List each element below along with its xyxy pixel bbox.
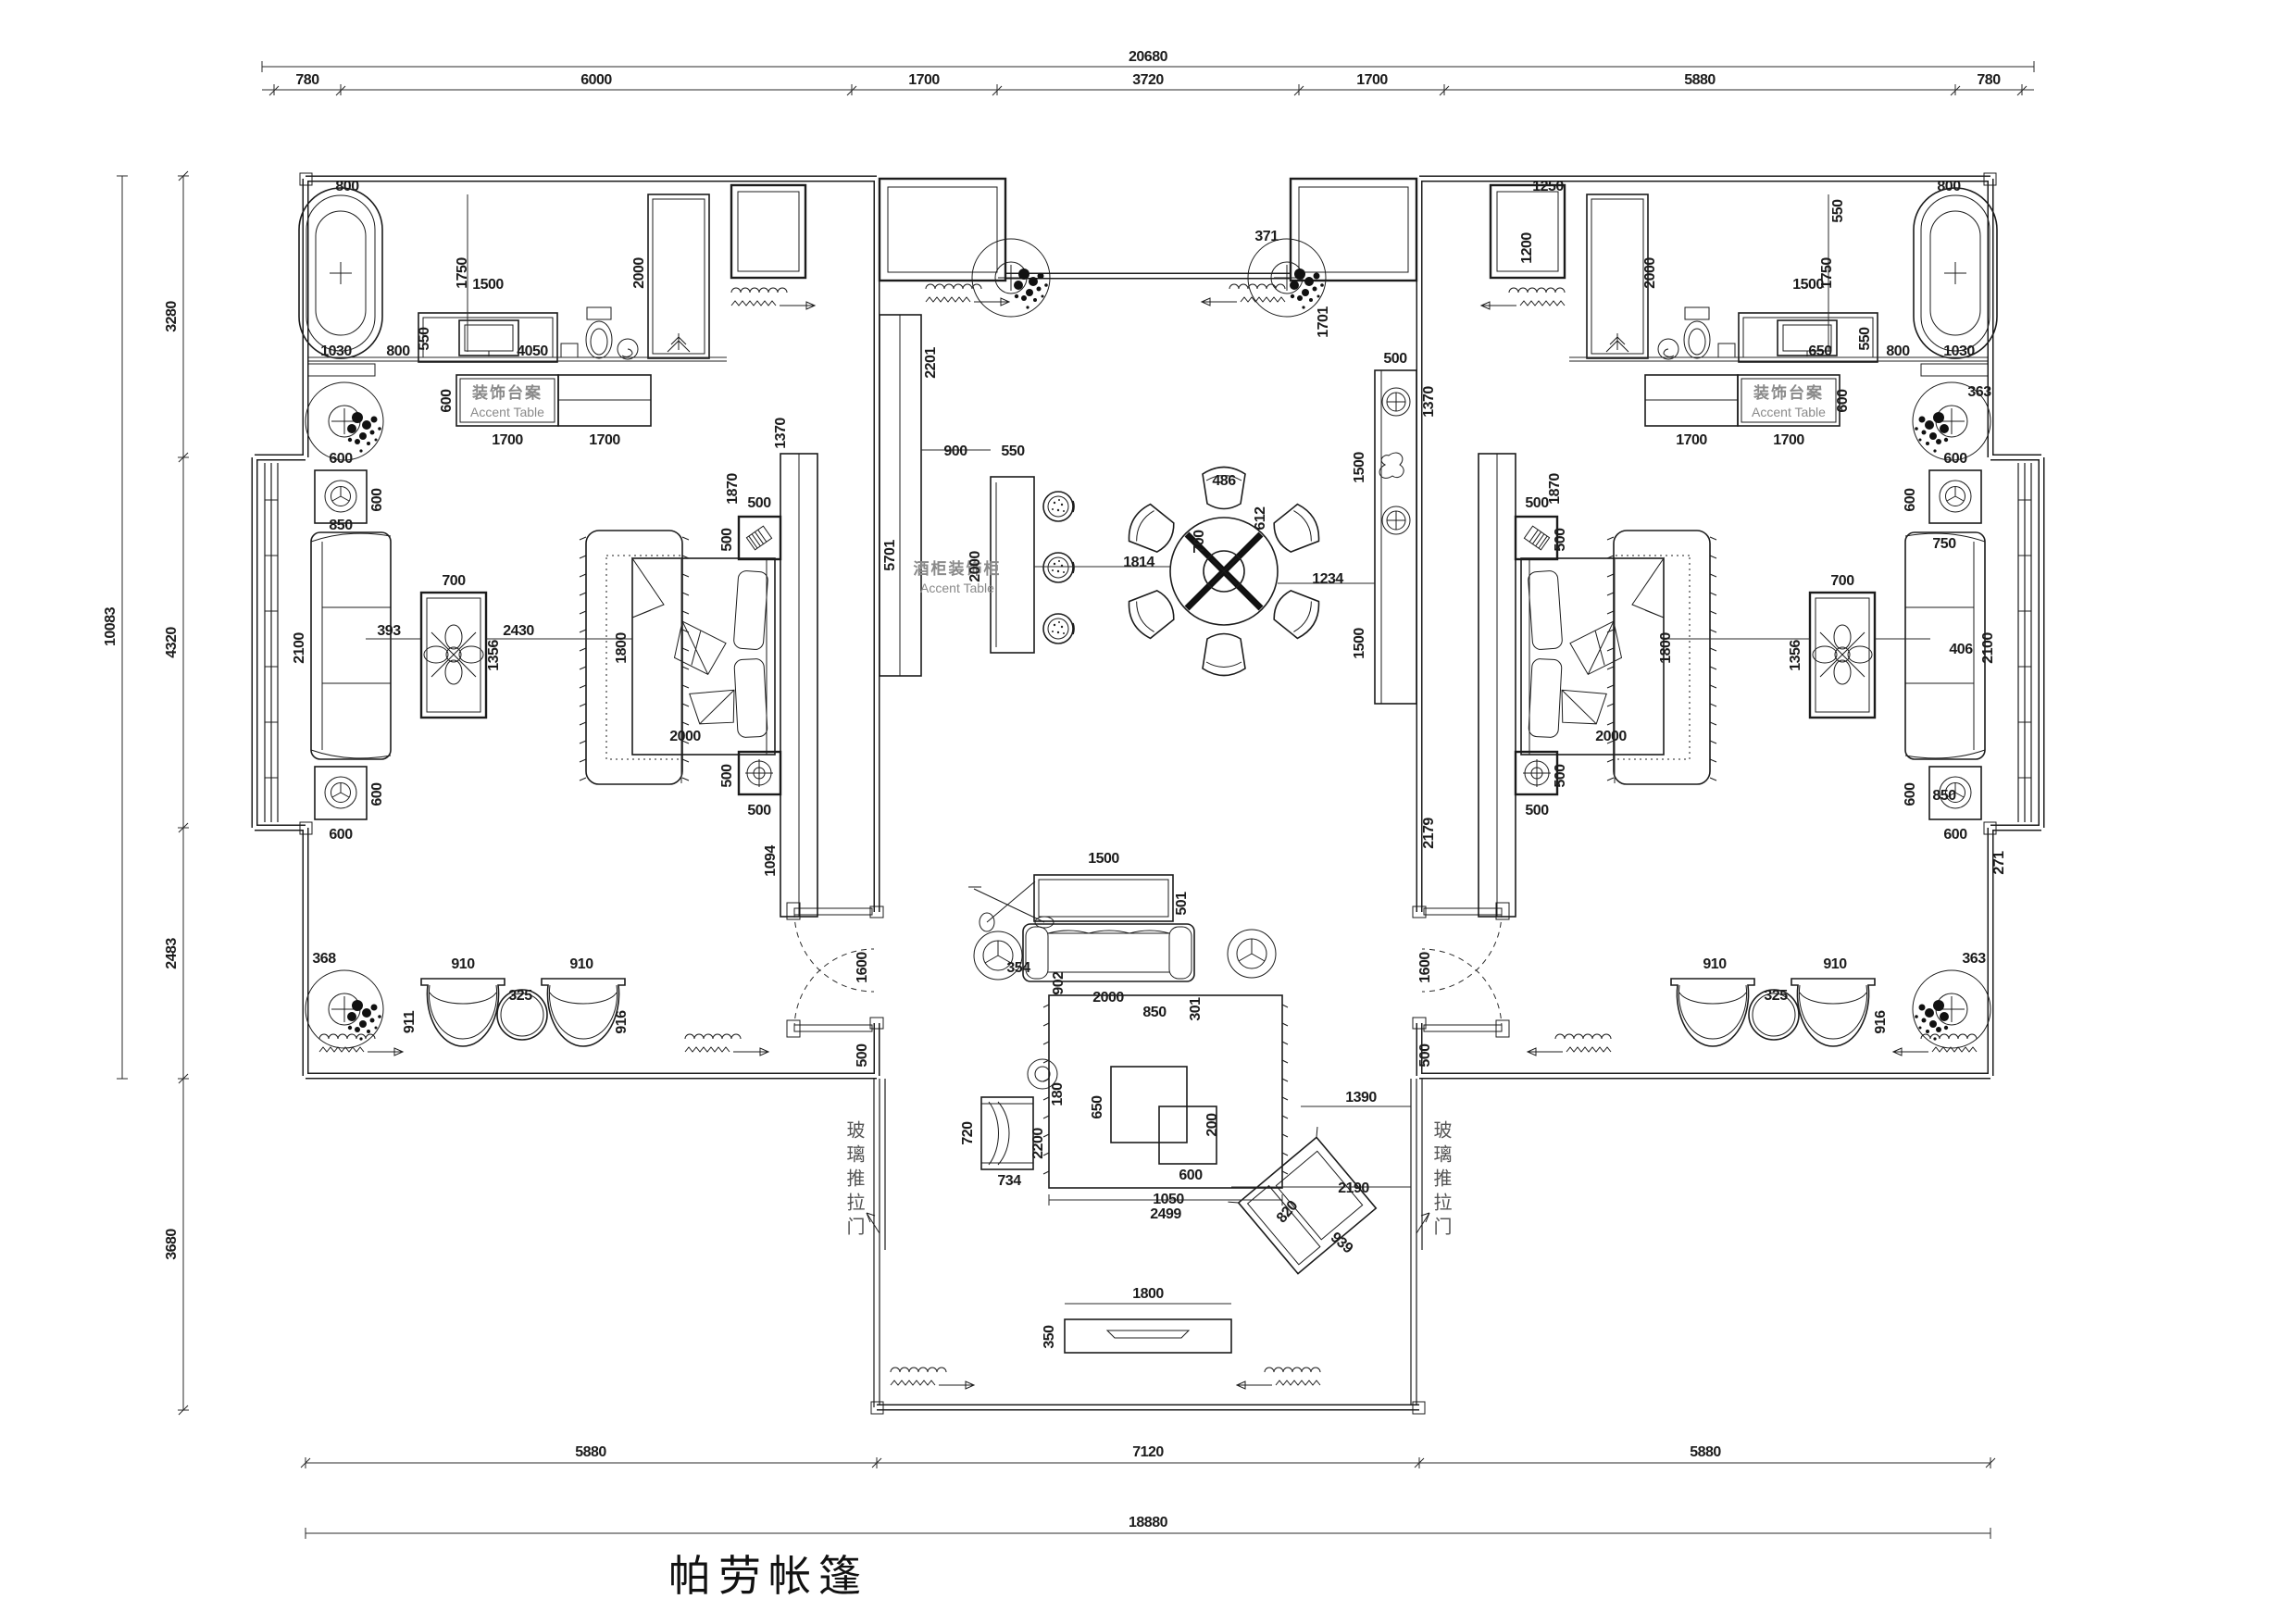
tv-console xyxy=(1065,1319,1231,1353)
dim-label: 1250 xyxy=(1532,179,1564,194)
dim-label: 1800 xyxy=(1658,632,1674,664)
dim-label: 7120 xyxy=(1132,1444,1164,1460)
dim-label: 500 xyxy=(1525,495,1549,511)
dim-label: 3720 xyxy=(1132,72,1164,88)
dim-label: 2000 xyxy=(967,551,983,582)
dim-label: 350 xyxy=(1042,1325,1057,1349)
glass-sliding-door-label: 玻璃推拉门 xyxy=(843,1120,865,1241)
dim-label: 2000 xyxy=(631,257,647,289)
dim-label: 368 xyxy=(312,951,336,967)
dim-label: 600 xyxy=(1943,827,1967,843)
accent-chair-rotated xyxy=(1228,1127,1381,1279)
dim-label: 371 xyxy=(1254,229,1279,244)
dim-label: 600 xyxy=(1903,488,1918,512)
dim-label: 200 xyxy=(1204,1113,1220,1137)
dim-label: 820 xyxy=(1274,1198,1302,1227)
dim-label: 1700 xyxy=(1676,432,1707,448)
dim-label: 911 xyxy=(402,1010,418,1033)
dim-label: 2000 xyxy=(1595,729,1627,744)
dim-label: 1030 xyxy=(320,344,352,359)
bench xyxy=(981,1097,1033,1169)
dim-label: 1600 xyxy=(1417,952,1433,983)
dim-label: 5880 xyxy=(575,1444,606,1460)
dining-table xyxy=(1170,518,1278,625)
entry-porch xyxy=(880,179,1416,306)
dim-label: 271 xyxy=(1991,851,2007,875)
dim-label: 1700 xyxy=(492,432,523,448)
dim-label: 501 xyxy=(1174,892,1190,916)
dim-label: 406 xyxy=(1949,642,1973,657)
dim-label: 1390 xyxy=(1345,1090,1377,1106)
dim-label: 780 xyxy=(1977,72,2001,88)
dim-label: 500 xyxy=(1417,1043,1433,1068)
dim-label: 1500 xyxy=(472,277,504,293)
dim-label: 910 xyxy=(1823,956,1847,972)
dim-label: 750 xyxy=(1932,536,1956,552)
dim-label: 180 xyxy=(1050,1082,1066,1106)
sofa xyxy=(1023,924,1194,981)
dim-label: 500 xyxy=(1525,803,1549,818)
dim-label: 1870 xyxy=(725,473,741,505)
dim-label: 780 xyxy=(295,72,319,88)
dim-label: 4050 xyxy=(517,344,548,359)
sofa-console xyxy=(1034,875,1173,921)
dim-label: 4320 xyxy=(164,627,180,658)
dim-label: 500 xyxy=(1383,351,1407,367)
dim-label: 2100 xyxy=(292,632,307,664)
dim-label: 2100 xyxy=(1980,632,1996,664)
dim-label: 1356 xyxy=(486,640,502,671)
dim-label: 2201 xyxy=(923,347,939,379)
dim-label: 550 xyxy=(1830,199,1846,223)
living-area xyxy=(968,875,1411,1353)
dim-label: 1200 xyxy=(1519,232,1535,264)
dim-label: 5880 xyxy=(1690,1444,1721,1460)
accent-table-label-cn: 装饰台案 xyxy=(1753,383,1824,402)
dimension-labels: 2068078060001700372017005880780100833280… xyxy=(103,49,2007,1530)
dim-label: 850 xyxy=(1932,788,1956,804)
dim-label: 486 xyxy=(1212,473,1236,489)
dim-label: 550 xyxy=(417,327,432,351)
dim-label: 1370 xyxy=(773,418,789,449)
dim-label: 600 xyxy=(329,451,353,467)
dim-label: 2483 xyxy=(164,938,180,969)
dim-label: 363 xyxy=(1962,951,1986,967)
dim-label: 500 xyxy=(747,495,771,511)
dim-label: 18880 xyxy=(1129,1515,1168,1530)
closet-box xyxy=(880,179,1005,281)
dim-label: 1700 xyxy=(908,72,940,88)
dim-label: 500 xyxy=(855,1043,870,1068)
dim-label: 650 xyxy=(1808,344,1832,359)
dim-label: 5880 xyxy=(1684,72,1716,88)
dim-label: 1094 xyxy=(763,845,779,877)
kitchenette xyxy=(1375,370,1416,704)
dim-label: 1700 xyxy=(1773,432,1804,448)
dim-label: 1500 xyxy=(1352,452,1367,483)
dim-label: 2430 xyxy=(503,623,534,639)
dim-label: 1370 xyxy=(1421,386,1437,418)
dim-label: 900 xyxy=(943,443,967,459)
dim-label: 1500 xyxy=(1088,851,1119,867)
dim-label: 10083 xyxy=(103,606,119,646)
accent-table-label-cn: 装饰台案 xyxy=(471,383,543,402)
floorplan-drawing: 装饰台案 Accent Table 装饰台案 Accent Table 酒柜装饰… xyxy=(0,0,2296,1624)
dim-label: 902 xyxy=(1051,971,1067,995)
floorplan-page: 装饰台案 Accent Table 装饰台案 Accent Table 酒柜装饰… xyxy=(0,0,2296,1624)
dim-label: 612 xyxy=(1253,506,1268,531)
dim-label: 1800 xyxy=(1132,1286,1164,1302)
dim-label: 1500 xyxy=(1352,628,1367,659)
dim-label: 354 xyxy=(1006,960,1030,976)
dim-label: 916 xyxy=(1873,1010,1889,1034)
dim-label: 939 xyxy=(1328,1230,1356,1257)
dim-label: 1356 xyxy=(1788,640,1803,671)
dim-label: 325 xyxy=(508,988,532,1004)
dim-label: 1600 xyxy=(855,952,870,983)
accent-table-label-en: Accent Table xyxy=(1752,405,1826,419)
dim-label: 2000 xyxy=(1092,990,1124,1006)
dim-label: 600 xyxy=(439,389,455,413)
dim-label: 2190 xyxy=(1338,1181,1369,1196)
dim-label: 600 xyxy=(369,782,385,806)
dim-label: 800 xyxy=(1886,344,1910,359)
dim-label: 5701 xyxy=(882,540,898,571)
dim-label: 600 xyxy=(369,488,385,512)
glass-sliding-door-label: 玻璃推拉门 xyxy=(1430,1120,1452,1241)
dim-label: 1700 xyxy=(589,432,620,448)
dim-label: 363 xyxy=(1967,384,1991,400)
dim-label: 550 xyxy=(1857,327,1873,351)
dim-label: 1050 xyxy=(1153,1192,1184,1207)
dim-label: 6000 xyxy=(580,72,612,88)
dim-label: 500 xyxy=(719,528,735,552)
dim-label: 700 xyxy=(1192,530,1207,554)
dim-label: 720 xyxy=(960,1121,976,1145)
dim-label: 500 xyxy=(747,803,771,818)
wine-cabinet-label-en: Accent Table xyxy=(920,581,994,595)
dim-label: 500 xyxy=(1553,764,1568,788)
dim-label: 393 xyxy=(377,623,401,639)
dim-label: 700 xyxy=(442,573,466,589)
dim-label: 1750 xyxy=(455,257,470,289)
wine-cabinet-label-cn: 酒柜装饰柜 xyxy=(914,559,1002,578)
dim-label: 325 xyxy=(1764,988,1788,1004)
dim-label: 301 xyxy=(1188,997,1204,1021)
dim-label: 2000 xyxy=(1642,257,1658,289)
dim-label: 1800 xyxy=(614,632,630,664)
dim-label: 1500 xyxy=(1792,277,1824,293)
drawing-title: 帕劳帐篷 xyxy=(668,1553,868,1600)
dim-label: 800 xyxy=(386,344,410,359)
dim-label: 700 xyxy=(1830,573,1854,589)
dim-label: 800 xyxy=(335,179,359,194)
dim-label: 1234 xyxy=(1312,571,1343,587)
dim-label: 2499 xyxy=(1150,1206,1181,1222)
dim-label: 3280 xyxy=(164,301,180,332)
dining-court xyxy=(880,239,1416,704)
dim-label: 850 xyxy=(329,518,353,533)
dim-label: 916 xyxy=(614,1010,630,1034)
dim-label: 910 xyxy=(1703,956,1727,972)
dim-label: 1814 xyxy=(1123,555,1154,570)
dim-label: 800 xyxy=(1937,179,1961,194)
dim-label: 500 xyxy=(719,764,735,788)
floor-lamp xyxy=(1228,930,1276,978)
closet-box xyxy=(1291,179,1416,281)
dim-label: 1700 xyxy=(1356,72,1388,88)
dimension-chains xyxy=(117,61,2034,1539)
dim-label: 650 xyxy=(1090,1095,1105,1119)
dim-label: 2000 xyxy=(669,729,701,744)
dim-label: 1870 xyxy=(1547,473,1563,505)
dim-label: 2200 xyxy=(1030,1128,1046,1159)
dim-label: 600 xyxy=(1903,782,1918,806)
dim-label: 2179 xyxy=(1421,818,1437,849)
living-rug xyxy=(1043,995,1288,1188)
dim-label: 600 xyxy=(1179,1168,1203,1183)
accent-table-label-en: Accent Table xyxy=(470,405,544,419)
dim-label: 600 xyxy=(329,827,353,843)
dim-label: 600 xyxy=(1835,389,1851,413)
dim-label: 550 xyxy=(1001,443,1025,459)
dim-label: 3680 xyxy=(164,1229,180,1260)
dim-label: 910 xyxy=(569,956,593,972)
dim-label: 1030 xyxy=(1943,344,1975,359)
dim-label: 20680 xyxy=(1129,49,1168,65)
dim-label: 734 xyxy=(997,1173,1021,1189)
dim-label: 1701 xyxy=(1316,306,1331,338)
dim-label: 600 xyxy=(1943,451,1967,467)
dim-label: 500 xyxy=(1553,528,1568,552)
dim-label: 910 xyxy=(451,956,475,972)
coffee-table-large xyxy=(1111,1067,1187,1143)
dim-label: 850 xyxy=(1142,1005,1167,1020)
